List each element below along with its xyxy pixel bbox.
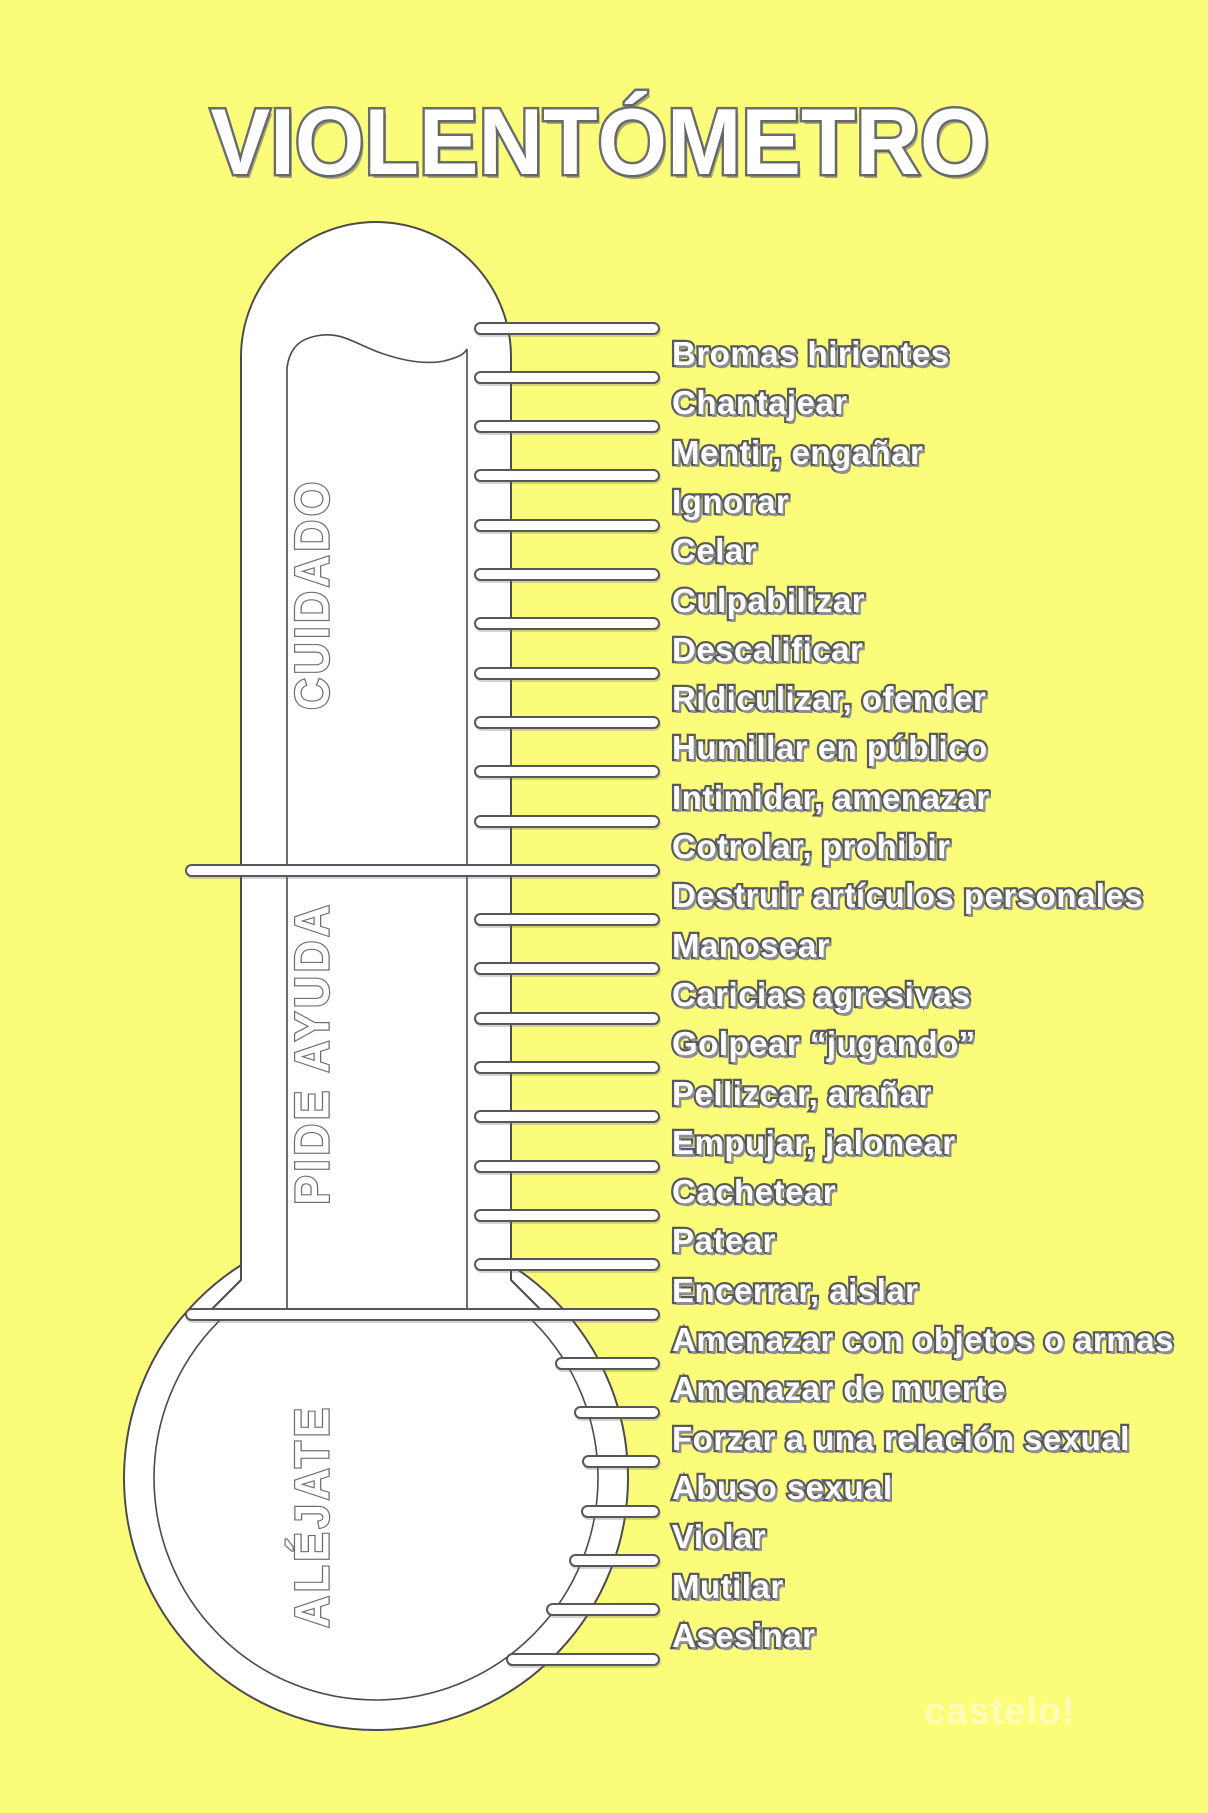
item-label: Asesinar [672, 1617, 815, 1655]
tick-mark [474, 519, 660, 532]
item-label: Amenazar con objetos o armas [672, 1321, 1174, 1359]
item-label: Caricias agresivas [672, 976, 971, 1014]
section-label-cuidado: CUIDADO [286, 478, 341, 710]
tick-mark [506, 1653, 660, 1666]
tick-mark [569, 1554, 660, 1567]
item-label: Descalificar [672, 631, 863, 669]
thermometer-bulb-inner [154, 1256, 598, 1700]
tick-mark [474, 1209, 660, 1222]
tick-mark [474, 1012, 660, 1025]
tick-mark [555, 1357, 660, 1370]
tick-mark [474, 371, 660, 384]
tick-mark [474, 815, 660, 828]
item-label: Amenazar de muerte [672, 1370, 1006, 1408]
item-label: Cachetear [672, 1173, 836, 1211]
item-label: Celar [672, 532, 757, 570]
item-label: Chantajear [672, 384, 848, 422]
tick-mark [474, 420, 660, 433]
item-label: Intimidar, amenazar [672, 779, 990, 817]
section-label-alejate: ALÉJATE [286, 1404, 341, 1628]
item-label: Cotrolar, prohibir [672, 828, 951, 866]
item-label: Empujar, jalonear [672, 1124, 956, 1162]
tick-mark [474, 1258, 660, 1271]
section-divider-line [185, 1308, 660, 1321]
violentometro-poster: VIOLENTÓMETRO CUIDADO PIDE AYUDA ALÉJATE… [0, 0, 1208, 1813]
tick-mark [546, 1603, 660, 1616]
item-label: Humillar en público [672, 729, 988, 767]
tick-mark [474, 716, 660, 729]
item-label: Abuso sexual [672, 1469, 893, 1507]
tick-mark [574, 1406, 660, 1419]
tick-mark [582, 1455, 660, 1468]
item-label: Ignorar [672, 483, 789, 521]
tick-mark [474, 1160, 660, 1173]
tick-mark [474, 962, 660, 975]
item-label: Forzar a una relación sexual [672, 1420, 1130, 1458]
item-label: Destruir artículos personales [672, 877, 1143, 915]
tick-mark [474, 568, 660, 581]
tick-mark [474, 1110, 660, 1123]
item-label: Golpear “jugando” [672, 1025, 976, 1063]
tick-mark [581, 1505, 660, 1518]
item-label: Patear [672, 1222, 776, 1260]
item-label: Mentir, engañar [672, 434, 923, 472]
tick-mark [474, 1061, 660, 1074]
tick-mark [474, 469, 660, 482]
item-label: Violar [672, 1518, 766, 1556]
item-label: Manosear [672, 927, 830, 965]
item-label: Encerrar, aislar [672, 1272, 919, 1310]
item-label: Ridiculizar, ofender [672, 680, 986, 718]
tick-mark [474, 765, 660, 778]
item-label: Culpabilizar [672, 582, 865, 620]
item-label: Bromas hirientes [672, 335, 950, 373]
section-label-pide-ayuda: PIDE AYUDA [286, 901, 341, 1204]
tick-mark [474, 667, 660, 680]
item-label: Pellizcar, arañar [672, 1075, 932, 1113]
watermark: castelo! [924, 1691, 1076, 1734]
tick-mark [474, 617, 660, 630]
tick-mark [474, 322, 660, 335]
item-label: Mutilar [672, 1568, 784, 1606]
section-divider-line [185, 864, 660, 877]
tick-mark [474, 913, 660, 926]
